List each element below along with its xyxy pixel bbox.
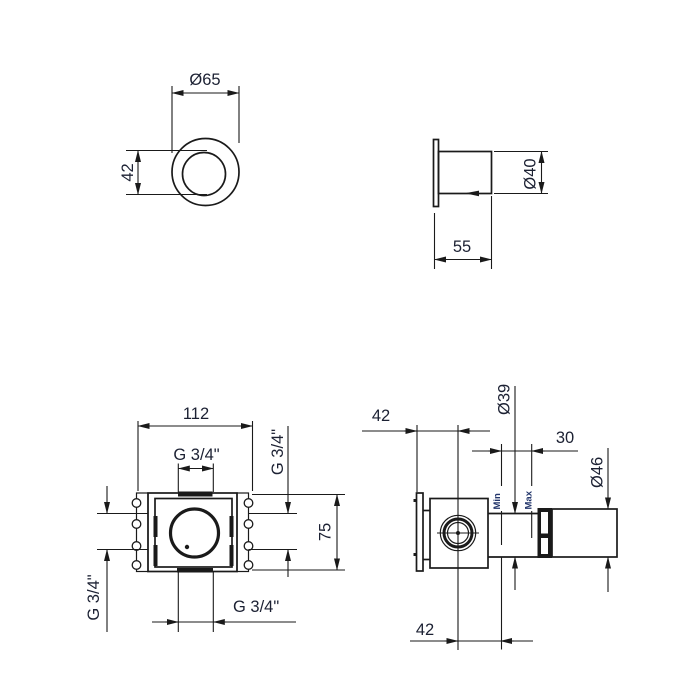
collar-bar: [538, 508, 542, 558]
max-label: Max: [523, 490, 534, 509]
wall-plate: [417, 493, 424, 571]
dim-handle-depth: 55: [453, 238, 471, 256]
dim-handle-diameter: Ø65: [189, 71, 220, 89]
handle-front-view: Ø65 42: [119, 71, 239, 206]
bottom-port: [177, 568, 213, 573]
flange-coil: [132, 520, 141, 529]
dim-handle-knob: 42: [119, 163, 137, 181]
dim-wall-to-axis: 42: [372, 407, 390, 425]
trim-sleeve: [552, 509, 617, 557]
valve-side-view: Min Max Ø39 30 42 42 Ø46: [362, 384, 617, 650]
dim-axis-to-min: 42: [416, 621, 434, 639]
valve-front-view: 112 G 3/4" G 3/4" G 3/4" G 3/4" 75: [85, 405, 345, 632]
dim-thread-bottom: G 3/4": [233, 598, 279, 616]
right-port: [230, 545, 234, 566]
handle-knob-circle: [183, 153, 226, 196]
min-label: Min: [492, 493, 503, 510]
flange-coil: [132, 499, 141, 508]
collar-band: [538, 508, 553, 512]
dim-adjustment-range: 30: [556, 429, 574, 447]
dim-thread-right: G 3/4": [269, 429, 287, 475]
dim-thread-top: G 3/4": [173, 446, 219, 464]
dim-thread-left: G 3/4": [85, 574, 103, 620]
left-port: [154, 545, 158, 566]
dim-trim-diameter: Ø46: [589, 457, 607, 488]
technical-drawing-page: Ø65 42 Ø40 55: [0, 0, 700, 700]
dim-valve-width: 112: [183, 405, 209, 423]
flange-coil: [244, 561, 253, 570]
right-port: [230, 516, 234, 537]
valve-body-outer: [148, 493, 237, 572]
technical-drawing: Ø65 42 Ø40 55: [0, 0, 700, 700]
dim-spindle-diameter: Ø39: [496, 384, 514, 415]
top-port: [178, 492, 213, 497]
dim-valve-height: 75: [317, 523, 335, 541]
flange-coil: [132, 561, 141, 570]
reference-dot: [185, 545, 189, 549]
flange-coil: [244, 520, 253, 529]
cartridge-circle: [171, 509, 219, 557]
handle-side-view: Ø40 55: [434, 140, 549, 270]
flange-coil: [244, 499, 253, 508]
collar-band: [538, 534, 553, 539]
left-port: [154, 516, 158, 537]
handle-cylinder: [439, 152, 492, 194]
dim-handle-side-diameter: Ø40: [522, 158, 540, 189]
flow-arrow: [465, 191, 479, 197]
